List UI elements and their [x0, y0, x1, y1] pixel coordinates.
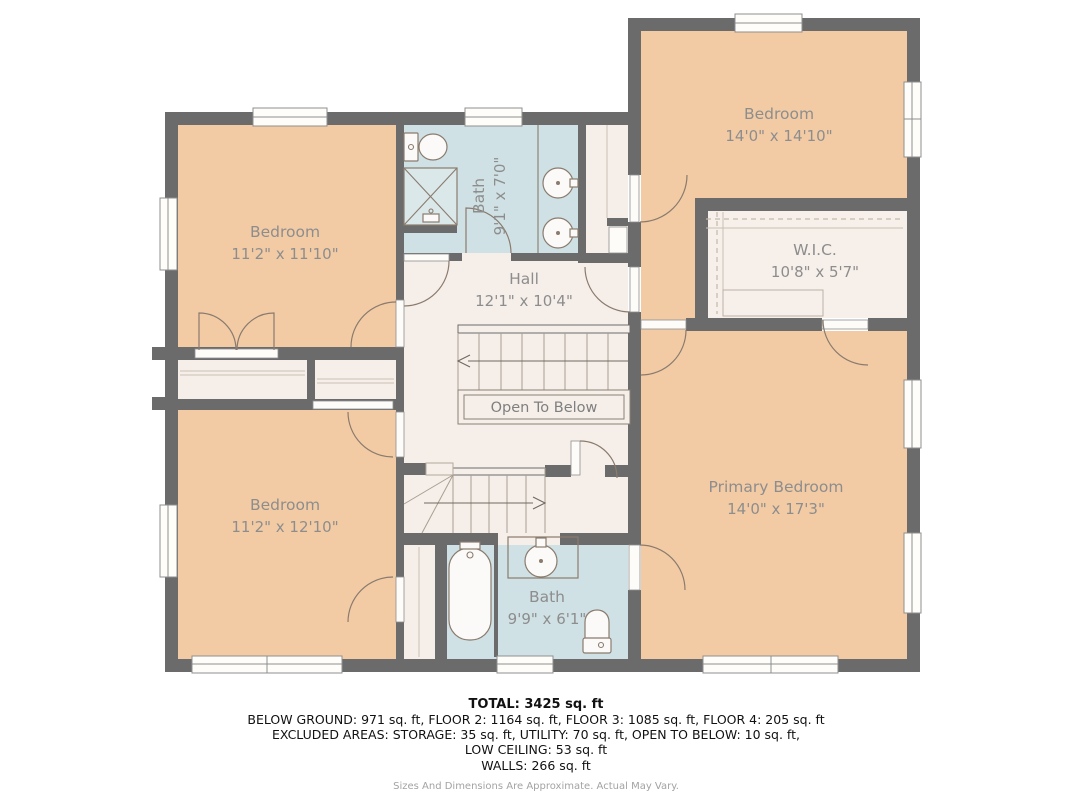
window: [253, 108, 327, 126]
window: [904, 533, 921, 613]
bathtub-icon: [449, 542, 491, 640]
vestibule-floor: [641, 198, 695, 331]
door-leaf: [630, 175, 639, 222]
floor-plan-drawing: Open To Below: [0, 0, 1072, 804]
door-leaf: [571, 441, 580, 475]
floor-plan-page: Open To Below: [0, 0, 1072, 804]
window: [735, 14, 802, 32]
window: [771, 656, 838, 673]
door-leaf: [396, 577, 404, 622]
window: [904, 82, 921, 119]
closet-door-opening: [195, 349, 278, 358]
door-leaf: [396, 300, 404, 347]
room-label: Bedroom: [744, 105, 814, 123]
room-dims: 11'2" x 12'10": [231, 518, 338, 536]
window: [904, 380, 921, 448]
area-summary: TOTAL: 3425 sq. ft BELOW GROUND: 971 sq.…: [0, 697, 1072, 792]
room-label: Primary Bedroom: [709, 478, 844, 496]
door-leaf: [822, 320, 868, 329]
room-label: Bedroom: [250, 496, 320, 514]
low-ceiling-area: LOW CEILING: 53 sq. ft: [0, 742, 1072, 757]
window: [465, 108, 522, 126]
room-label: Hall: [509, 270, 539, 288]
excluded-areas: EXCLUDED AREAS: STORAGE: 35 sq. ft, UTIL…: [0, 727, 1072, 742]
door-leaf: [396, 412, 404, 457]
window: [267, 656, 342, 673]
door-leaf: [404, 254, 449, 261]
room-dims: 14'0" x 17'3": [727, 500, 825, 518]
toilet-icon: [404, 133, 447, 161]
closet-shelf-opening: [609, 227, 627, 253]
window: [497, 656, 553, 673]
room-label: Bath: [529, 588, 565, 606]
wic-shelf: [723, 290, 823, 316]
room-dims: 11'2" x 11'10": [231, 245, 338, 263]
room-dims: 9'9" x 6'1": [508, 610, 587, 628]
window: [160, 505, 177, 577]
floor-areas: BELOW GROUND: 971 sq. ft, FLOOR 2: 1164 …: [0, 712, 1072, 727]
closet-door-opening: [313, 401, 393, 409]
room-dims: 14'0" x 14'10": [725, 127, 832, 145]
room-label: W.I.C.: [793, 241, 837, 259]
room-label: Bath: [470, 178, 488, 214]
door-leaf: [641, 320, 686, 329]
door-leaf: [630, 267, 639, 312]
room-dims: 10'8" x 5'7": [771, 263, 859, 281]
disclaimer: Sizes And Dimensions Are Approximate. Ac…: [0, 781, 1072, 792]
total-area: TOTAL: 3425 sq. ft: [0, 697, 1072, 712]
walls-area: WALLS: 266 sq. ft: [0, 758, 1072, 773]
window: [904, 119, 921, 157]
room-label: Bedroom: [250, 223, 320, 241]
window: [192, 656, 267, 673]
window: [703, 656, 771, 673]
shower-icon: [404, 168, 457, 225]
window: [160, 198, 177, 270]
door-leaf: [629, 545, 640, 590]
open-to-below-label: Open To Below: [491, 400, 598, 416]
room-dims: 12'1" x 10'4": [475, 292, 573, 310]
room-dims: 9'1" x 7'0": [491, 157, 509, 236]
toilet-icon: [583, 610, 611, 653]
